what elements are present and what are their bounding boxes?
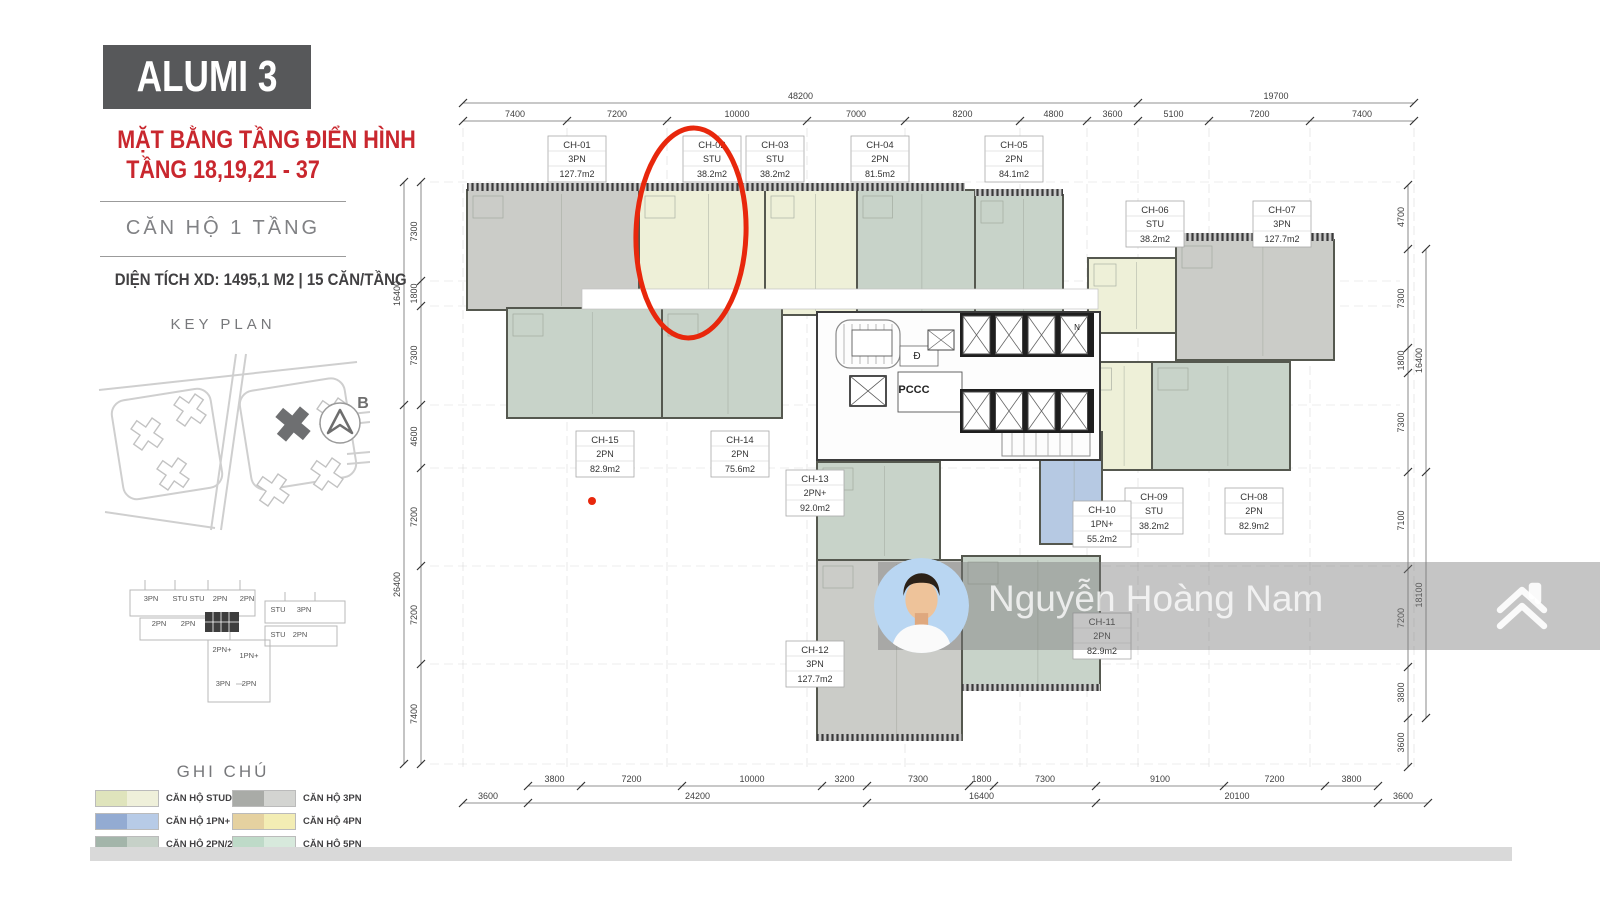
- svg-text:2PN: 2PN: [1005, 154, 1023, 164]
- balcony-strip: [975, 189, 1063, 196]
- plan-heading-line2: TẦNG 18,19,21 - 37: [117, 155, 329, 185]
- svg-text:81.5m2: 81.5m2: [865, 169, 895, 179]
- legend-label: CĂN HỘ 1PN+: [166, 816, 230, 827]
- svg-text:2PN: 2PN: [596, 449, 614, 459]
- svg-text:7100: 7100: [1396, 510, 1406, 530]
- svg-text:3800: 3800: [544, 774, 564, 784]
- footer-bar: [90, 847, 1512, 861]
- svg-text:4800: 4800: [1043, 109, 1063, 119]
- svg-text:3PN: 3PN: [568, 154, 586, 164]
- svg-text:3600: 3600: [1393, 791, 1413, 801]
- unit-label-ch-08: CH-082PN82.9m2: [1225, 488, 1283, 534]
- svg-text:1800: 1800: [971, 774, 991, 784]
- svg-text:CH-05: CH-05: [1000, 140, 1027, 151]
- compass: B: [315, 390, 375, 450]
- unit-area-ch-05: [975, 195, 1063, 330]
- svg-text:10000: 10000: [739, 774, 764, 784]
- legend-label: CĂN HỘ 4PN: [303, 816, 362, 827]
- unit-area-ch-15: [507, 308, 662, 418]
- balcony-strip: [962, 684, 1100, 691]
- svg-text:55.2m2: 55.2m2: [1087, 534, 1117, 544]
- svg-text:7200: 7200: [1264, 774, 1284, 784]
- unit-label-ch-14: CH-142PN75.6m2: [711, 431, 769, 477]
- svg-text:CH-01: CH-01: [563, 140, 590, 151]
- svg-text:CH-08: CH-08: [1240, 492, 1267, 503]
- svg-text:7300: 7300: [1396, 412, 1406, 432]
- svg-text:92.0m2: 92.0m2: [800, 503, 830, 513]
- legend-label: CĂN HỘ STUDIO: [166, 793, 242, 804]
- legend-column-left: CĂN HỘ STUDIOCĂN HỘ 1PN+CĂN HỘ 2PN/2PN+: [95, 790, 251, 853]
- legend-item: CĂN HỘ 4PN: [232, 813, 362, 830]
- unit-area-ch-08: [1152, 362, 1290, 470]
- svg-text:7400: 7400: [505, 109, 525, 119]
- svg-text:82.9m2: 82.9m2: [1239, 521, 1269, 531]
- svg-text:2PN: 2PN: [871, 154, 889, 164]
- svg-text:2PN: 2PN: [152, 619, 167, 628]
- svg-text:7300: 7300: [908, 774, 928, 784]
- svg-text:2PN: 2PN: [242, 679, 257, 688]
- svg-text:7400: 7400: [409, 704, 419, 724]
- svg-text:38.2m2: 38.2m2: [760, 169, 790, 179]
- svg-text:7300: 7300: [409, 221, 419, 241]
- svg-text:3800: 3800: [1396, 682, 1406, 702]
- svg-text:7000: 7000: [846, 109, 866, 119]
- unit-label-ch-06: CH-06STU38.2m2: [1126, 201, 1184, 247]
- svg-text:STU: STU: [703, 154, 721, 164]
- svg-text:3PN: 3PN: [297, 605, 312, 614]
- unit-label-ch-03: CH-03STU38.2m2: [746, 136, 804, 182]
- svg-text:STU: STU: [1145, 506, 1163, 516]
- svg-text:82.9m2: 82.9m2: [590, 464, 620, 474]
- svg-text:2PN: 2PN: [213, 594, 228, 603]
- svg-text:7200: 7200: [607, 109, 627, 119]
- svg-text:STU: STU: [766, 154, 784, 164]
- unit-label-ch-09: CH-09STU38.2m2: [1125, 488, 1183, 534]
- legend-item: CĂN HỘ 3PN: [232, 790, 362, 807]
- legend-swatch: [232, 813, 296, 830]
- corridor: [582, 289, 1098, 309]
- svg-text:127.7m2: 127.7m2: [1264, 234, 1299, 244]
- svg-text:CH-10: CH-10: [1088, 505, 1115, 516]
- svg-text:75.6m2: 75.6m2: [725, 464, 755, 474]
- svg-text:48200: 48200: [788, 91, 813, 101]
- mini-stacking-plan: 3PNSTUSTU2PN2PNSTU3PN2PN2PNSTU2PN2PN+1PN…: [100, 570, 360, 710]
- unit-label-ch-07: CH-073PN127.7m2: [1253, 201, 1311, 247]
- unit-area-ch-14: [662, 308, 782, 418]
- svg-text:2PN: 2PN: [731, 449, 749, 459]
- svg-text:24200: 24200: [685, 791, 710, 801]
- unit-area-ch-06: [1088, 258, 1176, 333]
- svg-text:3200: 3200: [834, 774, 854, 784]
- legend-title: GHI CHÚ: [100, 762, 346, 782]
- unit-label-ch-12: CH-123PN127.7m2: [786, 641, 844, 687]
- legend-label: CĂN HỘ 3PN: [303, 793, 362, 804]
- svg-text:STU: STU: [271, 605, 286, 614]
- svg-text:N: N: [1074, 323, 1080, 332]
- brand-logo-icon: [1490, 570, 1554, 638]
- svg-text:5100: 5100: [1163, 109, 1183, 119]
- unit-label-ch-15: CH-152PN82.9m2: [576, 431, 634, 477]
- svg-text:8200: 8200: [952, 109, 972, 119]
- svg-text:CH-04: CH-04: [866, 140, 893, 151]
- svg-text:3600: 3600: [1102, 109, 1122, 119]
- svg-text:2PN: 2PN: [293, 630, 308, 639]
- svg-text:7200: 7200: [409, 507, 419, 527]
- info-sidebar: ALUMI 3 MẶT BẰNG TẦNG ĐIỂN HÌNH TẦNG 18,…: [100, 45, 346, 333]
- legend-swatch: [95, 790, 159, 807]
- svg-text:STU: STU: [271, 630, 286, 639]
- compass-letter: B: [357, 395, 369, 412]
- key-plan-title: KEY PLAN: [100, 316, 346, 333]
- svg-text:3PN: 3PN: [216, 679, 231, 688]
- svg-text:STU: STU: [173, 594, 188, 603]
- svg-text:CH-15: CH-15: [591, 435, 618, 446]
- project-title-box: ALUMI 3: [103, 45, 311, 109]
- svg-text:20100: 20100: [1224, 791, 1249, 801]
- svg-text:26400: 26400: [392, 572, 402, 597]
- svg-text:Đ: Đ: [913, 351, 920, 362]
- svg-text:2PN+: 2PN+: [804, 488, 827, 498]
- svg-text:127.7m2: 127.7m2: [559, 169, 594, 179]
- svg-text:2PN: 2PN: [1245, 506, 1263, 516]
- svg-text:19700: 19700: [1263, 91, 1288, 101]
- svg-text:7200: 7200: [409, 605, 419, 625]
- svg-text:4600: 4600: [409, 426, 419, 446]
- svg-text:7200: 7200: [621, 774, 641, 784]
- watermark-avatar: [874, 558, 969, 653]
- legend-column-right: CĂN HỘ 3PNCĂN HỘ 4PNCĂN HỘ 5PN: [232, 790, 362, 853]
- svg-text:127.7m2: 127.7m2: [797, 674, 832, 684]
- svg-text:1800: 1800: [409, 283, 419, 303]
- svg-text:7200: 7200: [1249, 109, 1269, 119]
- svg-text:3PN: 3PN: [806, 659, 824, 669]
- unit-label-ch-04: CH-042PN81.5m2: [851, 136, 909, 182]
- svg-text:3PN: 3PN: [144, 594, 159, 603]
- unit-area-ch-07: [1176, 240, 1334, 360]
- red-dot-marker: [588, 497, 596, 505]
- svg-text:STU: STU: [190, 594, 205, 603]
- svg-text:CH-03: CH-03: [761, 140, 788, 151]
- svg-text:3800: 3800: [1341, 774, 1361, 784]
- plan-heading-line1: MẶT BẰNG TẦNG ĐIỂN HÌNH: [117, 125, 329, 155]
- svg-text:CH-12: CH-12: [801, 645, 828, 656]
- svg-text:7300: 7300: [409, 345, 419, 365]
- svg-text:38.2m2: 38.2m2: [1139, 521, 1169, 531]
- divider: [100, 201, 346, 202]
- legend-item: CĂN HỘ 1PN+: [95, 813, 251, 830]
- svg-text:16400: 16400: [969, 791, 994, 801]
- svg-text:16400: 16400: [1414, 348, 1424, 373]
- legend-swatch: [232, 790, 296, 807]
- divider: [100, 256, 346, 257]
- unit-label-ch-05: CH-052PN84.1m2: [985, 136, 1043, 182]
- current-building-marker: [268, 399, 319, 450]
- unit-floor-note: CĂN HỘ 1 TẦNG: [100, 217, 346, 240]
- svg-text:CH-06: CH-06: [1141, 205, 1168, 216]
- svg-text:1800: 1800: [1396, 350, 1406, 370]
- legend-item: CĂN HỘ STUDIO: [95, 790, 251, 807]
- balcony-strip: [467, 183, 965, 191]
- svg-text:PCCC: PCCC: [898, 384, 929, 396]
- svg-text:CH-07: CH-07: [1268, 205, 1295, 216]
- svg-text:7300: 7300: [1035, 774, 1055, 784]
- unit-label-ch-01: CH-013PN127.7m2: [548, 136, 606, 182]
- svg-text:38.2m2: 38.2m2: [1140, 234, 1170, 244]
- svg-text:4700: 4700: [1396, 207, 1406, 227]
- svg-text:2PN+: 2PN+: [213, 645, 233, 654]
- svg-text:38.2m2: 38.2m2: [697, 169, 727, 179]
- svg-text:10000: 10000: [724, 109, 749, 119]
- project-title: ALUMI 3: [137, 52, 278, 102]
- svg-text:3PN: 3PN: [1273, 219, 1291, 229]
- svg-text:2PN: 2PN: [181, 619, 196, 628]
- svg-text:1PN+: 1PN+: [1091, 519, 1114, 529]
- unit-label-ch-13: CH-132PN+92.0m2: [786, 470, 844, 516]
- svg-text:7300: 7300: [1396, 288, 1406, 308]
- legend-swatch: [95, 813, 159, 830]
- svg-text:84.1m2: 84.1m2: [999, 169, 1029, 179]
- svg-text:3600: 3600: [1396, 732, 1406, 752]
- area-note: DIỆN TÍCH XD: 1495,1 M2 | 15 CĂN/TẦNG: [115, 270, 331, 290]
- svg-text:CH-14: CH-14: [726, 435, 753, 446]
- svg-text:2PN: 2PN: [240, 594, 255, 603]
- svg-text:3600: 3600: [478, 791, 498, 801]
- unit-label-ch-10: CH-101PN+55.2m2: [1073, 501, 1131, 547]
- svg-text:CH-13: CH-13: [801, 474, 828, 485]
- svg-text:1PN+: 1PN+: [240, 651, 260, 660]
- watermark-name: Nguyễn Hoàng Nam: [988, 578, 1323, 620]
- svg-text:7400: 7400: [1352, 109, 1372, 119]
- svg-text:CH-09: CH-09: [1140, 492, 1167, 503]
- svg-text:STU: STU: [1146, 219, 1164, 229]
- svg-text:9100: 9100: [1150, 774, 1170, 784]
- balcony-strip: [817, 734, 962, 741]
